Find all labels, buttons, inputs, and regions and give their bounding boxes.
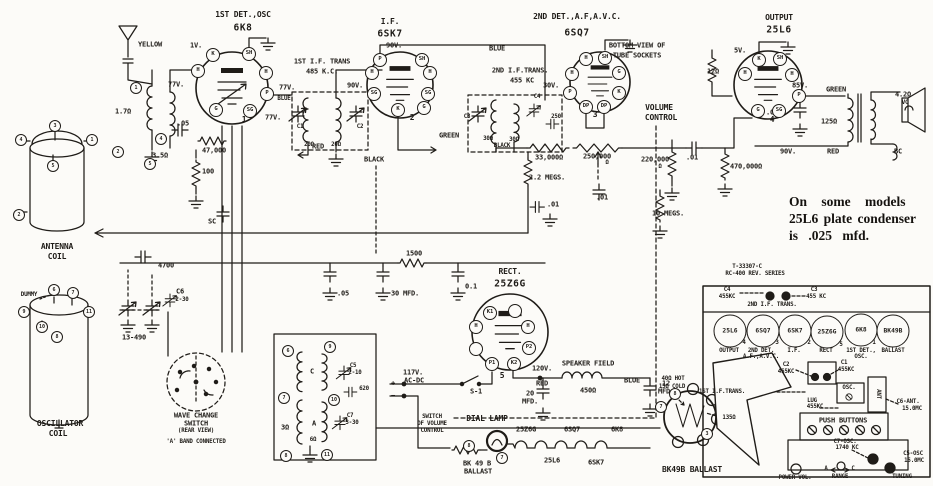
mains-switch-3: CONTROL [420,429,443,435]
rect-number: 5 [500,372,505,380]
mains-minus: − [391,393,395,400]
ballast-res: 135Ω [722,416,735,422]
socket-num-5: 5 [839,343,842,349]
heater-25z6g: 25Z6G [516,427,536,434]
socket-num-2: 2 [807,341,810,347]
c1-label: C1 [297,125,304,131]
rect-pin-p1: P1 [485,357,499,371]
det2-number: 3 [593,111,598,119]
out-pin-h1: H [738,67,752,81]
volt-120: 120V. [532,366,552,373]
radio-schematic: 1ST DET.,OSC 6K8 I.F. 6SK7 2ND DET.,A.F,… [0,0,933,486]
socket-25z6g: 25Z6G [811,316,844,349]
res-47k: 47,000 [202,148,226,155]
if1-pin-k: K [391,103,405,117]
cap-20mfd-1: 20 [526,391,534,398]
c7-value: 3-30 [345,421,358,427]
mains-volts: 117V. [403,370,423,377]
mains-switch-1: SWITCH [422,415,442,421]
res-100: 100 [202,169,214,176]
chassis-range-knob: RANGE [832,475,848,481]
osc-coil-title-2: COIL [49,430,67,438]
if1-sec-ohms: 20Ω [331,143,341,149]
wire-blue-1: BLUE [489,46,505,53]
cap-4700: 4700 [158,263,174,270]
socket-note-2: TUBE SOCKETS [613,53,661,60]
out-pin-p: P [792,89,806,103]
volt-90c: 90V. [780,149,796,156]
socket-6sk7: 6SK7 [779,315,812,348]
res-470k: 470,000Ω [730,164,762,171]
det2-pin-p: P [563,86,577,100]
osc-6ohm: 6Ω [310,438,317,444]
chassis-if1-label: 1ST I.F.TRANS. [699,390,745,396]
det2-pin-h2: H [565,67,579,81]
note-line-1: On some models [789,194,906,210]
socket-25l6: 25L6 [714,315,747,348]
volume-label-1: VOLUME [645,104,673,112]
chassis-range-a: A [824,467,827,473]
res-125: 125Ω [821,119,837,126]
socket-cap-if: I.F. [787,349,800,355]
chassis-lug-freq: 455KC [807,405,823,411]
note-line-2: 25L6 plate condenser [789,211,916,227]
wire-green-1: GREEN [826,87,846,94]
if-tube: 6SK7 [377,29,402,39]
antcoil-pin-4: 4 [155,133,167,145]
volt-1v: 1V. [190,43,202,50]
volt-90b: 90V. [347,83,363,90]
wire-black-1: BLACK [364,157,384,164]
winding-a: A [312,421,316,428]
if1-pin-sh: SH [415,53,429,67]
mains-switch-2: OF VOLUME [417,422,447,428]
dial-pin-8: 8 [463,440,475,452]
socket-bk49b: BK49B [877,315,910,348]
if1-pin-sg1: SG [367,87,381,101]
oscpic-pin-10: 10 [36,321,48,333]
pot-ohm: Ω [605,161,608,167]
vc-impedance: 4.2Ω [895,92,911,99]
res-220k-ohm: Ω [658,165,661,171]
rect-pin-blank1 [508,304,522,318]
c5-name: C5 [350,364,357,370]
cap-01b: .01 [596,195,608,202]
if1-pin-p: P [373,53,387,67]
osccoil-pin-9: 9 [324,341,336,353]
out-number: 4 [770,116,775,124]
ant-secondary-ohms: 3.5Ω [152,153,168,160]
res-1500: 1500 [406,251,422,258]
ballast-name: BK49B BALLAST [662,466,722,474]
socket-num-3: 3 [775,341,778,347]
out-pin-sg: SG [772,104,786,118]
rect-pin-k2: K2 [507,357,521,371]
det2-pin-k: K [612,86,626,100]
wave-switch-l3: (REAR VIEW) [178,429,214,435]
volt-77c: 77V. [265,115,281,122]
c4-label: C4 [534,95,541,101]
chassis-c3: C3 [811,288,818,294]
ballast-pin-8: 8 [669,388,681,400]
winding-c: C [310,369,314,376]
det1-pin-g: G [209,103,223,117]
wire-green-2: GREEN [439,133,459,140]
heater-25l6: 25L6 [544,458,560,465]
chassis-c5-freq: 15.0MC [904,459,924,465]
socket-6sq7: 6SQ7 [747,315,780,348]
antpic-pin-3: 3 [49,120,61,132]
cap-05: .05 [177,121,189,128]
chassis-c3-freq: 455 KC [806,295,826,301]
volume-label-2: CONTROL [645,114,677,122]
c7-name: C7 [347,414,354,420]
socket-note-1: BOTTOM VIEW OF [609,43,665,50]
heater-6sq7: 6SQ7 [564,427,580,434]
wire-red-2: RED [827,149,839,156]
out-caption: OUTPUT [765,14,793,22]
cap-0-1: 0.1 [465,284,477,291]
antenna-coil-pictorial [20,131,92,231]
chassis-c2: C2 [783,363,790,369]
det2-tube: 6SQ7 [564,28,589,38]
field-label: SPEAKER FIELD [562,361,614,368]
chassis-c5-label: C5-OSC [903,452,923,458]
chassis-c7-freq: 1740 KC [835,446,858,452]
dial-pin-7: 7 [496,452,508,464]
det2-pin-dp2: DP [597,100,611,114]
if1-pin-g: G [417,101,431,115]
det1-number: 1 [242,116,247,124]
chassis-range-c: C [851,467,854,473]
socket-num-4: 4 [742,341,745,347]
rect-pin-h1: H [469,320,483,334]
note-line-3: is .025 mfd. [789,228,869,244]
mains-acdc: AC-DC [404,378,424,385]
osc-3ohm: 3Ω [281,425,289,432]
heater-6sk7: 6SK7 [588,460,604,467]
wave-switch-l2: SWITCH [184,421,208,428]
cap-05b: .05 [337,291,349,298]
if1-number: 2 [410,114,415,122]
dial-lamp-label: DIAL LAMP [466,415,508,423]
osc-coil-title-1: OSCILLATOR [37,420,83,428]
if1-pin-sg2: SG [421,87,435,101]
if1-pin-h1: H [365,66,379,80]
mains-plus: + [391,381,395,388]
rect-tube: 25Z6G [494,279,526,289]
bc-label: BC [894,149,902,156]
socket-cap-rect: RECT [819,349,832,355]
det2-pin-sh: SH [598,51,612,65]
cap-30mfd: 30 MFD. [391,291,419,298]
antenna-coil-title-2: COIL [48,253,66,261]
det1-tube: 6K8 [234,23,253,33]
chassis-c4: C4 [724,288,731,294]
volt-77b: 77V. [279,85,295,92]
oscpic-pin-11: 11 [83,306,95,318]
if1-freq: 485 K.C. [306,69,338,76]
chassis-tuning-knob: TUNING [892,475,912,481]
ballast-pin-7: 7 [655,401,667,413]
volt-5: 5V. [734,48,746,55]
ballast-string-1: BK 49 B [463,461,491,468]
socket-cap-det1b: OSC. [854,355,867,361]
ballast-pin-3: 3 [701,428,713,440]
rect-pin-blank2 [469,342,483,356]
out-tube: 25L6 [766,25,791,35]
chassis-c1-freq: 455KC [838,368,854,374]
wire-black-2: BLACK [494,144,510,150]
if-caption: I.F. [381,18,399,26]
if1-pin-h2: H [423,66,437,80]
if2-sec-ohms: 30Ω [509,138,519,144]
chassis-c4-freq: 455KC [719,295,735,301]
volt-90a: 90V. [386,43,402,50]
antcoil-pin-2: 2 [112,146,124,158]
antenna-icon [119,26,152,84]
chassis-pushbuttons: PUSH BUTTONS [819,418,867,425]
if2-freq: 455 KC [510,78,534,85]
rect-pin-h2: H [521,320,535,334]
cap-620: 620 [359,387,369,393]
res-22meg: 2.2 MEGS. [529,175,565,182]
det2-pin-h1: H [579,52,593,66]
oscpic-pin-7: 7 [67,287,79,299]
chassis-c1: C1 [841,361,848,367]
det1-pin-k: K [206,48,220,62]
chassis-c2-freq: 455KC [778,370,794,376]
out-pin-sh: SH [773,52,787,66]
out-pin-g: G [751,104,765,118]
if1-name: 1ST I.F. TRANS [294,59,350,66]
c5-value: 2-10 [348,371,361,377]
rect-pin-p2: P2 [522,341,536,355]
det2-caption: 2ND DET.,A.F,A.V.C. [533,13,621,21]
res-220k: 220,000 [641,157,669,164]
gang-13-490: 13-490 [122,335,146,342]
chassis-osc-label: OSC. [842,386,855,392]
if2-pri-ohms: 30Ω [483,137,493,143]
cap-20mfd-2: MFD. [522,399,538,406]
field-ohms: 450Ω [580,388,596,395]
det1-pin-h2: H [259,66,273,80]
ballast-string-2: BALLAST [464,469,492,476]
wire-blue-2: BLUE [277,97,290,103]
chassis-if2-label: 2ND I.F. TRANS. [747,303,796,309]
c6-value: 2-30 [175,298,188,304]
cap-01c: .01 [686,155,698,162]
oscillator-coil-pictorial [30,295,88,428]
out-pin-k: K [752,53,766,67]
res-33k: 33,000Ω [535,155,563,162]
det1-caption: 1ST DET.,OSC [215,11,270,19]
det1-pin-h1: H [191,64,205,78]
oscpic-pin-8: 8 [51,331,63,343]
chassis-model-1: T-33307-C [732,265,762,271]
ant-primary-ohms: 1.7Ω [115,109,131,116]
ballast-hot: 40Ω HOT [661,377,684,383]
cap-01a: .01 [547,202,559,209]
det1-pin-sh: SH [242,47,256,61]
volt-77a: 77V. [168,82,184,89]
det1-pin-p: P [260,87,274,101]
osccoil-pin-6: 6 [282,345,294,357]
antpic-pin-4: 4 [15,134,27,146]
osccoil-pin-11: 11 [321,449,333,461]
osccoil-pin-8: 8 [280,450,292,462]
c6-name: C6 [176,289,184,296]
volt-30: 30V. [543,83,559,90]
rect-pin-k1: K1 [483,306,497,320]
wave-switch-l1: WAVE CHANGE [174,413,218,420]
antcoil-pin-5: 5 [144,158,156,170]
wire-yellow: YELLOW [138,42,162,49]
chassis-ant-label: ANT [874,389,880,399]
socket-cap-ballast: BALLAST [881,349,904,355]
chassis-model-2: RC-400 REV. SERIES [725,272,784,278]
det2-pin-g: G [612,66,626,80]
wire-red-3: RED [536,381,548,388]
res-12: 12Ω [707,69,719,76]
switch-s1: S-1 [470,389,482,396]
osccoil-pin-10: 10 [328,394,340,406]
cap-250: 250 [551,115,561,121]
cap-sc: SC [208,219,216,226]
chassis-c6-label: C6-ANT. [896,400,919,406]
heater-6k8: 6K8 [611,427,623,434]
chassis-power-knob: POWER-VOL. [779,476,812,482]
antpic-pin-5: 5 [47,160,59,172]
socket-cap-det2b: A.F.,A.V.C. [743,355,779,361]
antpic-pin-2: 2 [13,209,25,221]
det2-pin-dp1: DP [579,100,593,114]
socket-num-1: 1 [872,341,875,347]
if1-pri-ohms: 20Ω [304,143,314,149]
res-10meg: 10 MEGS. [652,211,684,218]
chassis-c6-freq: 15.0MC [902,407,922,413]
socket-cap-output: OUTPUT [719,349,739,355]
det1-pin-sg: SG [243,104,257,118]
osccoil-pin-7: 7 [278,392,290,404]
oscpic-pin-9: 9 [18,306,30,318]
wire-blue-3: BLUE [624,378,640,385]
wave-switch-l4: 'A' BAND CONNECTED [166,440,225,446]
vc-label: VC [902,101,909,107]
osc-coil-dummy: DUMMY [21,293,37,299]
out-pin-h2: H [785,68,799,82]
antpic-pin-1: 1 [86,134,98,146]
if2-name: 2ND I.F.TRANS. [492,68,548,75]
c3-label: C3 [464,115,471,121]
c2-label: C2 [357,125,364,131]
antenna-coil-title-1: ANTENNA [41,243,73,251]
socket-6k8: 6K8 [845,314,878,347]
rect-caption: RECT. [498,268,521,276]
antcoil-pin-1: 1 [130,82,142,94]
oscpic-pin-6: 6 [48,284,60,296]
